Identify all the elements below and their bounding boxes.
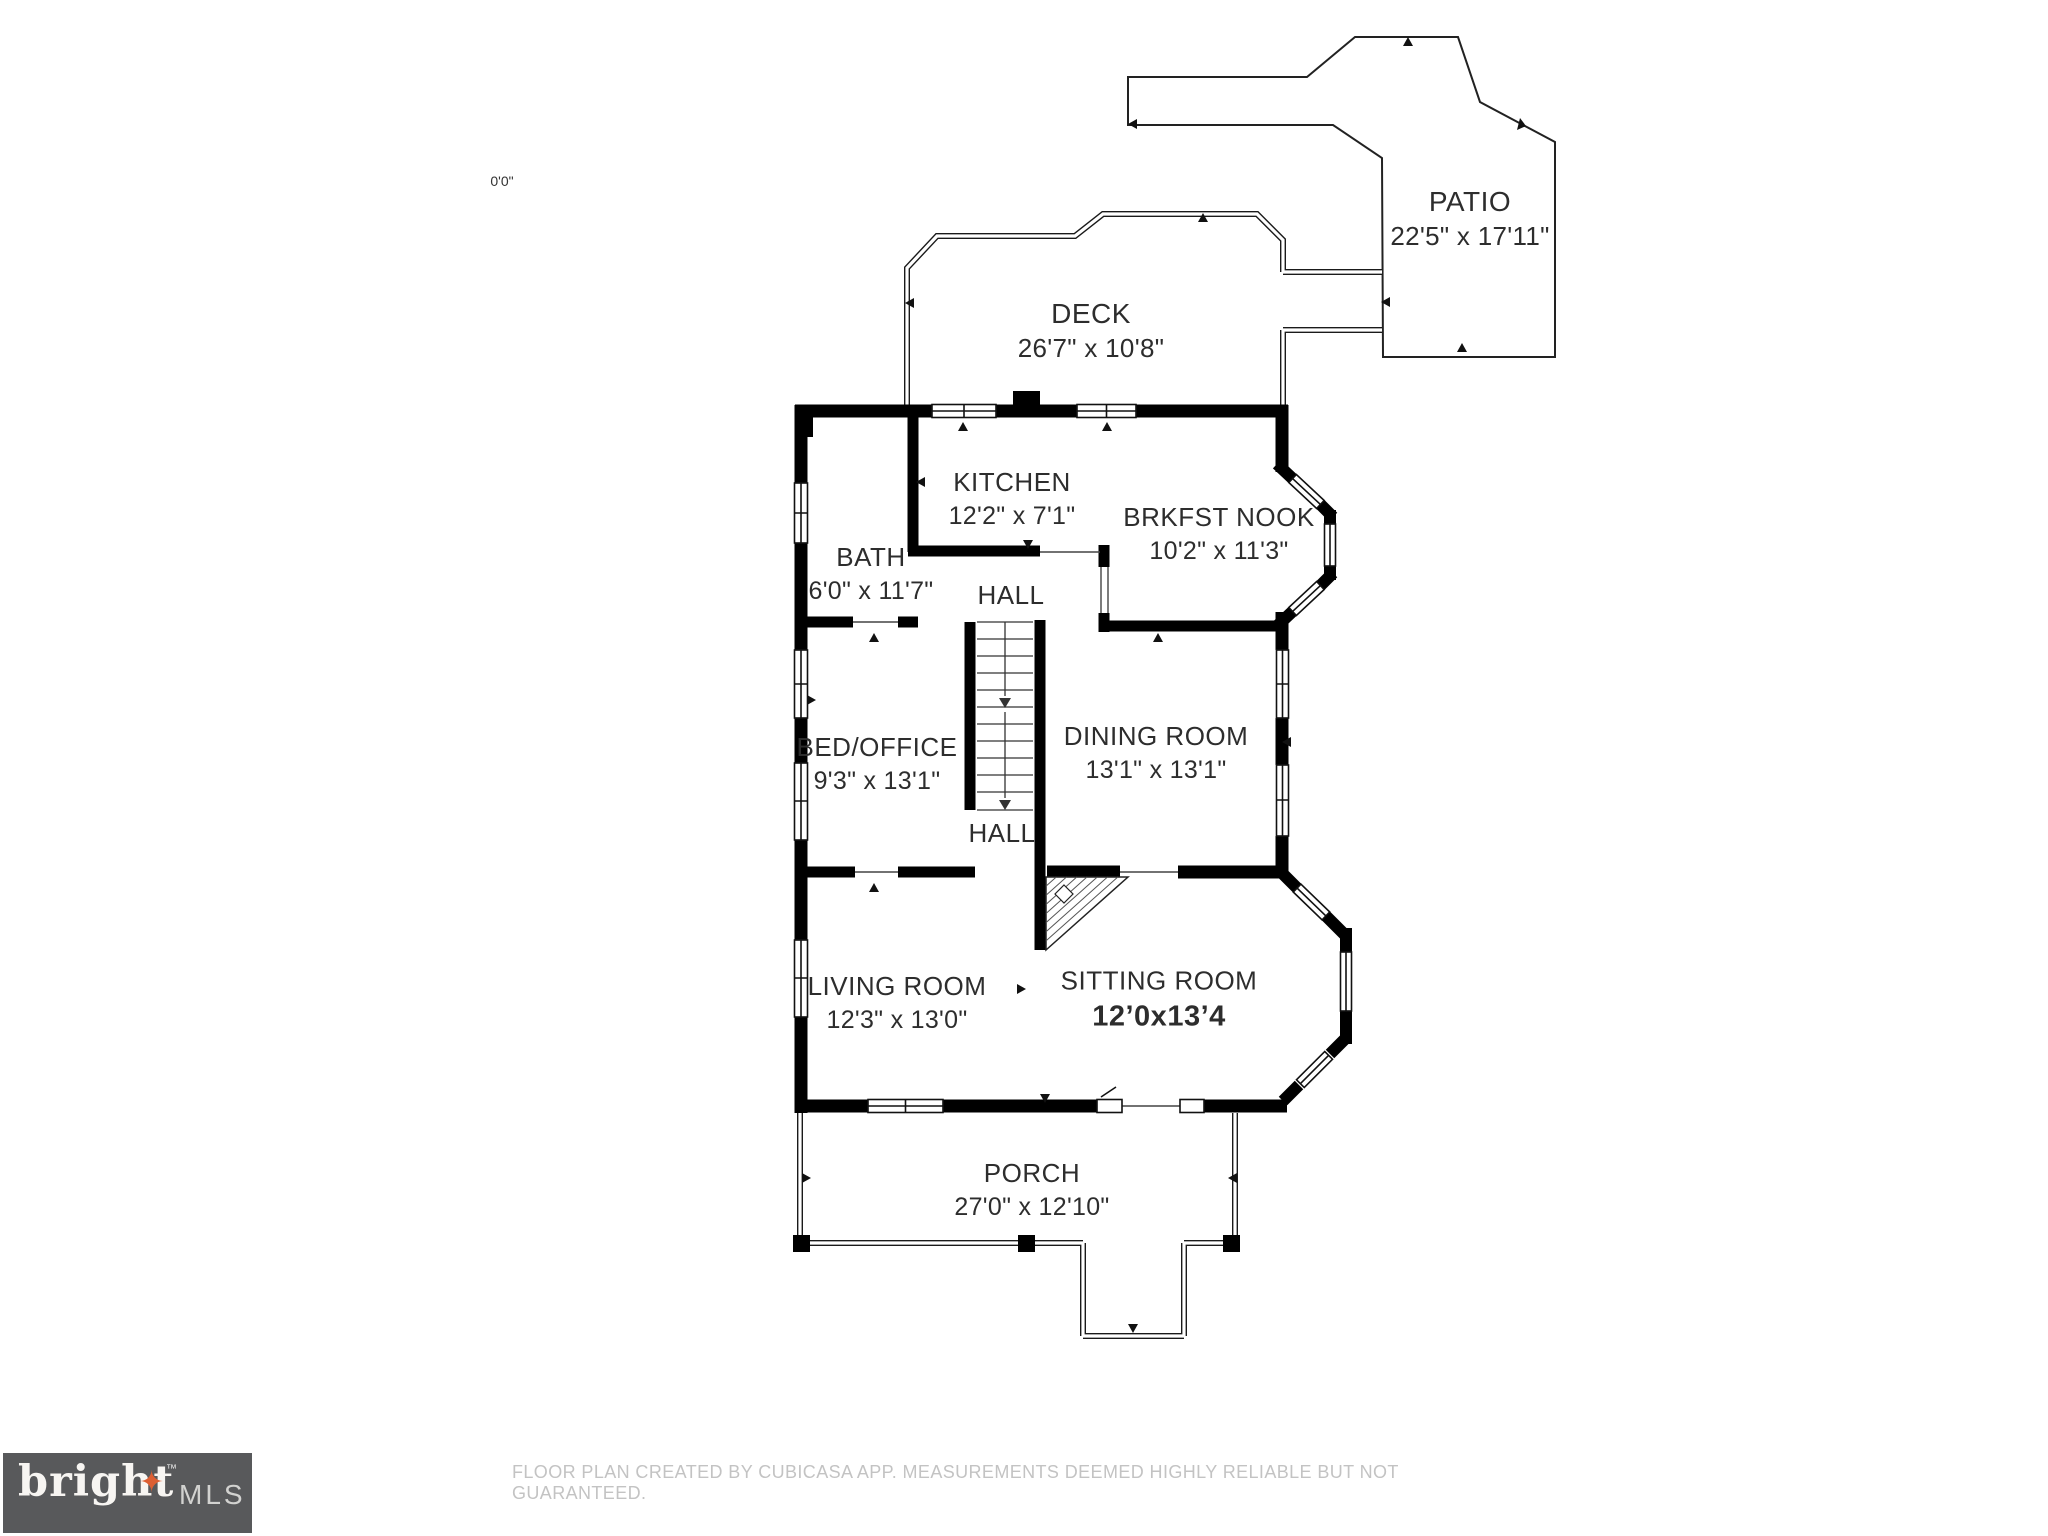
room-dims: 27'0" x 12'10" — [954, 1191, 1109, 1224]
room-label-brkfst-nook: BRKFST NOOK 10'2" x 11'3" — [1123, 501, 1314, 567]
room-dims: 9'3" x 13'1" — [796, 765, 957, 798]
room-label-kitchen: KITCHEN 12'2" x 7'1" — [949, 466, 1076, 532]
logo-suffix-text: MLS — [179, 1479, 246, 1511]
room-dims: 22'5" x 17'11" — [1390, 220, 1549, 254]
floorplan-page: 0'0" PATIO 22'5" x 17'11" DECK 26'7" x 1… — [0, 0, 2048, 1536]
room-dims: 10'2" x 11'3" — [1123, 535, 1314, 568]
room-label-bed-office: BED/OFFICE 9'3" x 13'1" — [796, 731, 957, 797]
winder-stairs — [1046, 877, 1128, 950]
room-name: HALL — [968, 817, 1035, 851]
room-name: PATIO — [1390, 184, 1549, 220]
room-label-bath: BATH 6'0" x 11'7" — [809, 541, 934, 607]
room-name: BED/OFFICE — [796, 731, 957, 765]
scale-marker: 0'0" — [490, 173, 513, 189]
room-name: HALL — [977, 579, 1044, 613]
room-label-sitting-room: SITTING ROOM 12’0x13’4 — [1061, 964, 1258, 1035]
room-name: LIVING ROOM — [808, 970, 987, 1004]
room-dims: 26'7" x 10'8" — [1018, 332, 1165, 366]
room-name: KITCHEN — [949, 466, 1076, 500]
room-name: DECK — [1018, 296, 1165, 332]
room-label-deck: DECK 26'7" x 10'8" — [1018, 296, 1165, 366]
room-dims: 12’0x13’4 — [1061, 998, 1258, 1036]
room-dims: 6'0" x 11'7" — [809, 575, 934, 608]
room-name: BATH — [809, 541, 934, 575]
room-label-living-room: LIVING ROOM 12'3" x 13'0" — [808, 970, 987, 1036]
room-dims: 12'2" x 7'1" — [949, 500, 1076, 533]
staircase — [977, 622, 1033, 810]
room-label-patio: PATIO 22'5" x 17'11" — [1390, 184, 1549, 254]
room-name: DINING ROOM — [1064, 720, 1249, 754]
bright-mls-logo: bright ✦ ™ MLS — [3, 1453, 252, 1533]
room-label-hall-lower: HALL — [968, 817, 1035, 851]
room-label-hall-upper: HALL — [977, 579, 1044, 613]
trademark-symbol: ™ — [166, 1463, 177, 1475]
room-name: SITTING ROOM — [1061, 964, 1258, 998]
room-label-dining-room: DINING ROOM 13'1" x 13'1" — [1064, 720, 1249, 786]
room-label-porch: PORCH 27'0" x 12'10" — [954, 1157, 1109, 1223]
disclaimer-text: FLOOR PLAN CREATED BY CUBICASA APP. MEAS… — [512, 1462, 1536, 1504]
porch-outline — [793, 1113, 1240, 1336]
star-icon: ✦ — [139, 1465, 164, 1500]
room-dims: 12'3" x 13'0" — [808, 1004, 987, 1037]
floorplan-drawing — [0, 0, 2048, 1536]
room-name: BRKFST NOOK — [1123, 501, 1314, 535]
room-name: PORCH — [954, 1157, 1109, 1191]
room-dims: 13'1" x 13'1" — [1064, 754, 1249, 787]
